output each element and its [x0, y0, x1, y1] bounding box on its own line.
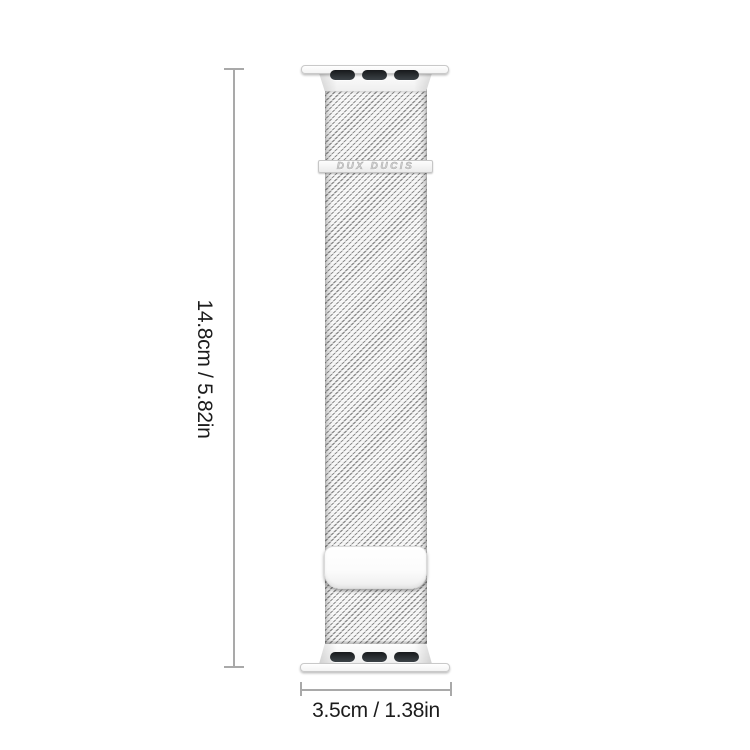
top-connector-slot: [330, 70, 355, 80]
bottom-connector-slot: [362, 652, 387, 662]
brand-engraving-plate: DUX DUCIS: [318, 160, 433, 173]
bottom-lug-adapter-plate: [300, 663, 450, 672]
bottom-connector-slot: [394, 652, 419, 662]
width-dimension-label: 3.5cm / 1.38in: [312, 699, 440, 723]
product-dimension-diagram: 14.8cm / 5.82in DUX DUCIS 3.5cm / 1.38in: [0, 0, 750, 750]
height-dimension-line: [233, 69, 235, 667]
top-connector-slot: [362, 70, 387, 80]
width-dimension-line: [301, 689, 452, 691]
height-dimension-label: 14.8cm / 5.82in: [192, 299, 216, 438]
width-dimension-right-tick: [450, 682, 452, 696]
top-connector-slot: [394, 70, 419, 80]
bottom-connector-slot: [330, 652, 355, 662]
brand-engraving-text: DUX DUCIS: [337, 162, 415, 172]
magnetic-clasp: [324, 546, 427, 589]
height-dimension-bottom-cap: [224, 666, 244, 668]
